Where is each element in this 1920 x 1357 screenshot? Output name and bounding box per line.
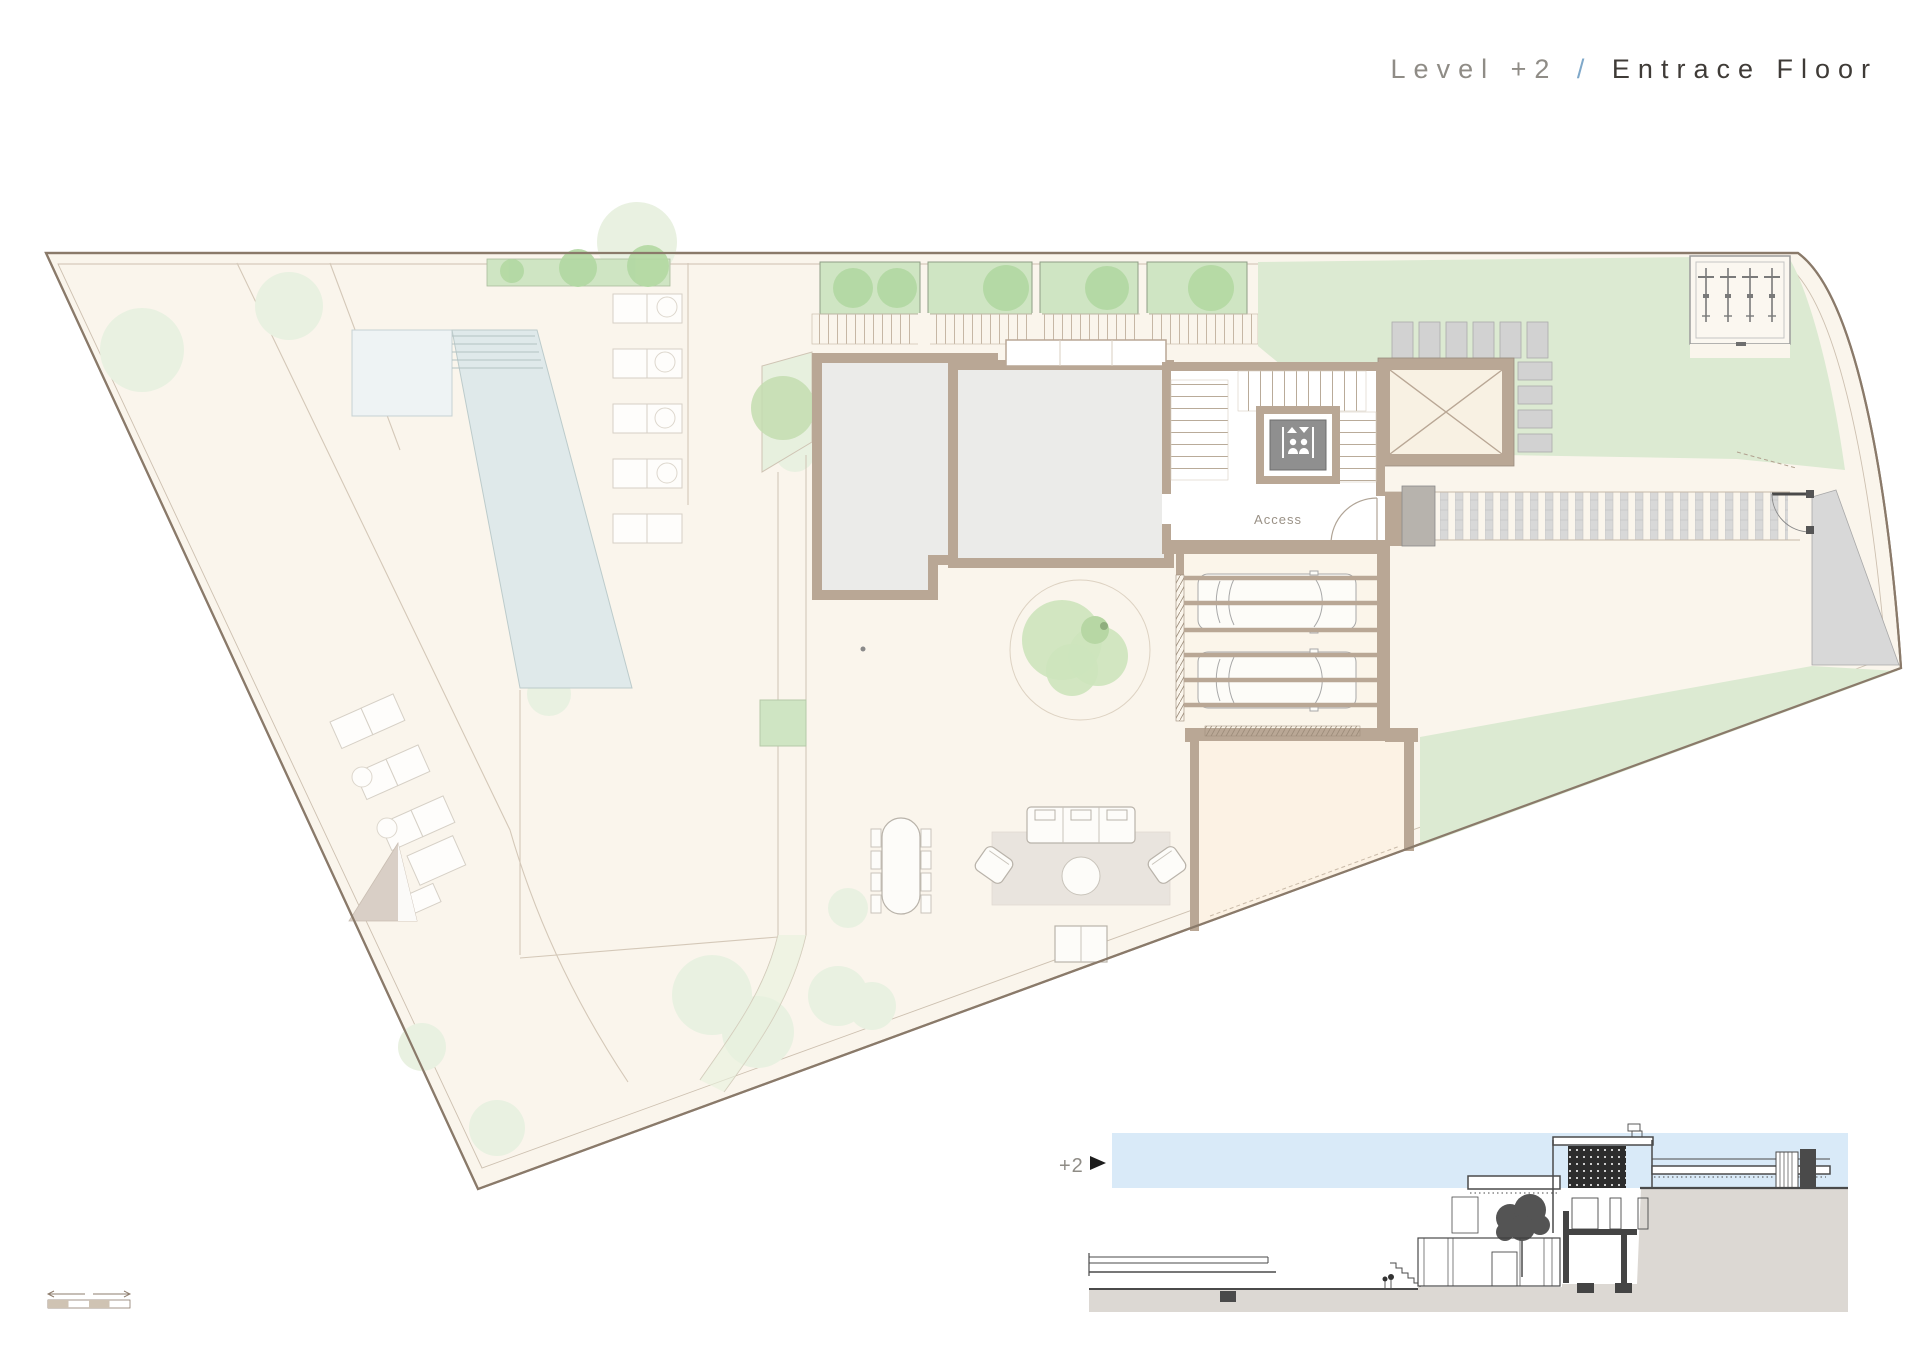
tree-icon: [828, 888, 868, 928]
coffee-table: [1062, 857, 1100, 895]
bike-parking: [1690, 256, 1790, 358]
level-marker-arrow-icon: [1090, 1156, 1106, 1170]
garage-door-strip: [1176, 575, 1184, 721]
column-dot: [861, 647, 866, 652]
sofa: [1027, 807, 1135, 843]
drawing-sheet: Level +2 / Entrace Floor: [0, 0, 1920, 1357]
elevator-shaft: [1256, 406, 1340, 484]
vestibule: [1006, 340, 1166, 366]
dining-set: [871, 818, 931, 914]
driveway: [1385, 486, 1800, 546]
tree-icon: [751, 376, 815, 440]
dining-table: [882, 818, 920, 914]
bench: [1055, 926, 1107, 962]
stair-core: Access: [1162, 362, 1385, 554]
tree-icon: [255, 272, 323, 340]
plan-svg: Access: [0, 0, 1920, 1357]
tree-icon: [100, 308, 184, 392]
access-label: Access: [1254, 512, 1302, 527]
tree-icon: [848, 982, 896, 1030]
entry-wall-stub: [1385, 492, 1402, 546]
room-center: [958, 370, 1164, 558]
patio-rear: [1190, 728, 1418, 931]
garage: [1162, 540, 1390, 742]
entry-door: [1402, 486, 1435, 546]
planter-box-small: [760, 700, 806, 746]
level-marker-label: +2: [1059, 1155, 1084, 1177]
paving-stripes: [1436, 492, 1788, 540]
scale-bar: [48, 1291, 130, 1308]
garage-tie-strip: [1205, 726, 1360, 736]
tree-icon: [469, 1100, 525, 1156]
shrubs: [1383, 1274, 1395, 1288]
section-drawing: +2: [1059, 1124, 1848, 1312]
pool-platform: [352, 330, 452, 416]
site-plan: Access: [46, 202, 1901, 1189]
patio-cross-room: [1378, 358, 1514, 466]
